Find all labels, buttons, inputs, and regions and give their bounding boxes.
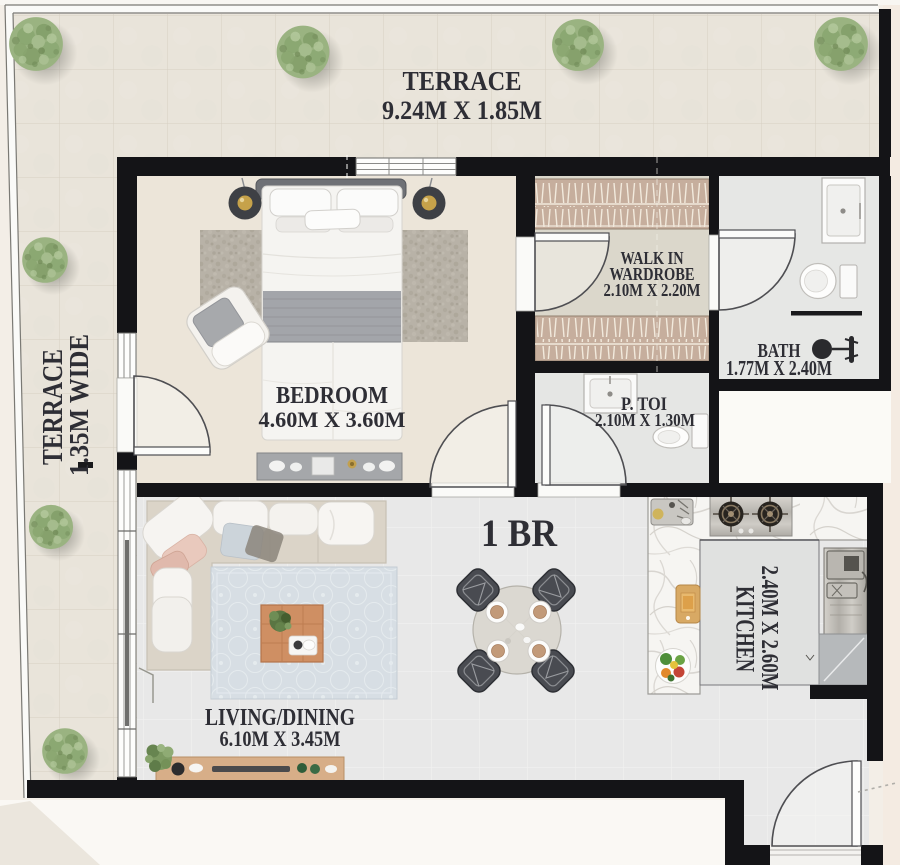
svg-text:BEDROOM: BEDROOM xyxy=(276,383,388,409)
svg-text:2.40M X 2.60M: 2.40M X 2.60M xyxy=(756,566,782,691)
svg-text:2.10M X 2.20M: 2.10M X 2.20M xyxy=(604,280,701,300)
svg-text:TERRACE: TERRACE xyxy=(403,66,522,96)
svg-text:1.77M X 2.40M: 1.77M X 2.40M xyxy=(726,356,832,380)
svg-text:1 BR: 1 BR xyxy=(481,512,558,555)
svg-text:6.10M X 3.45M: 6.10M X 3.45M xyxy=(220,726,341,751)
svg-text:9.24M X 1.85M: 9.24M X 1.85M xyxy=(382,96,542,125)
svg-text:1.35M WIDE: 1.35M WIDE xyxy=(64,334,94,476)
svg-text:KITCHEN: KITCHEN xyxy=(731,586,760,672)
svg-text:4.60M X 3.60M: 4.60M X 3.60M xyxy=(259,407,406,432)
svg-text:2.10M X 1.30M: 2.10M X 1.30M xyxy=(595,410,695,430)
